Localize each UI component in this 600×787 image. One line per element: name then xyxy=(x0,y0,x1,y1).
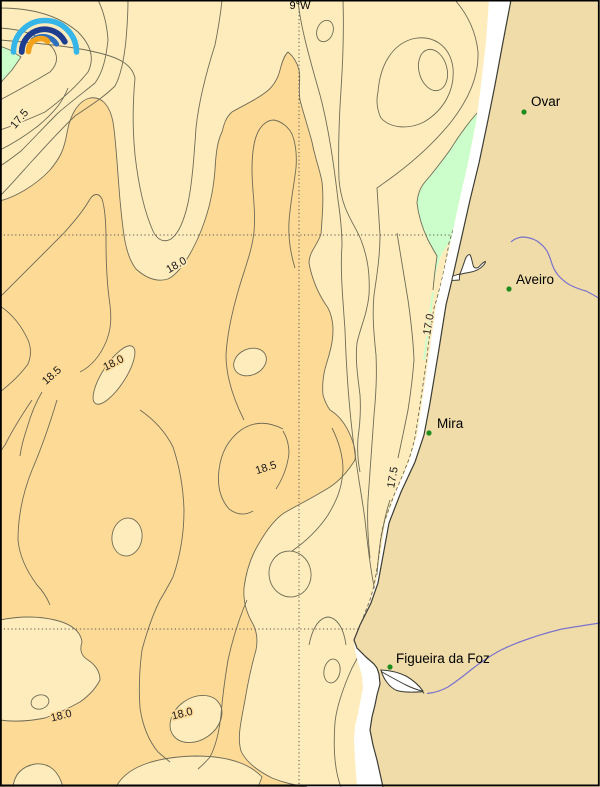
svg-text:Mira: Mira xyxy=(437,416,464,431)
svg-text:9°W: 9°W xyxy=(290,0,312,12)
svg-text:Ovar: Ovar xyxy=(531,94,561,109)
svg-text:Aveiro: Aveiro xyxy=(516,272,554,287)
svg-text:Figueira da Foz: Figueira da Foz xyxy=(396,651,490,666)
